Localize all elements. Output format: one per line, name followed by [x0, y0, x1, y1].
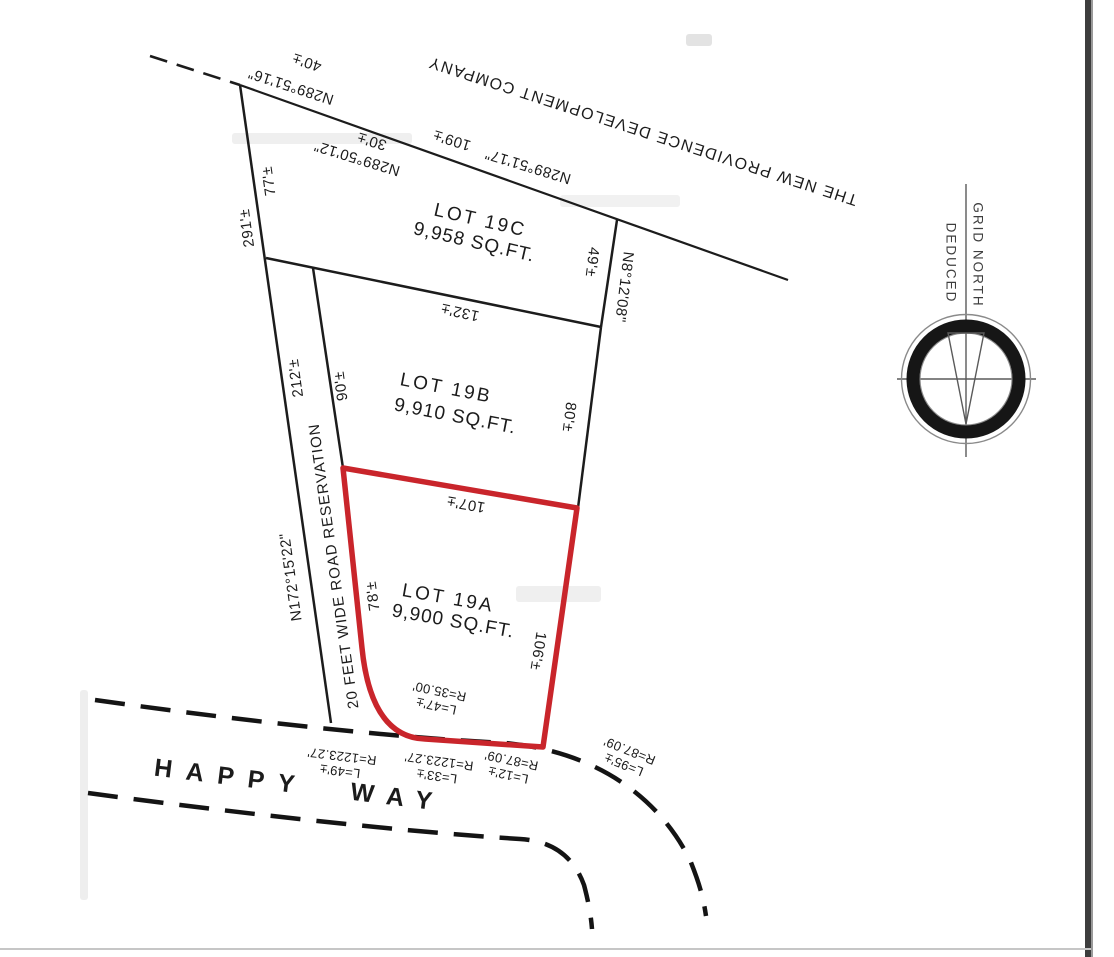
dim-80: 80'± — [559, 401, 580, 433]
west-boundary-line — [240, 85, 331, 723]
compass-grid-north-label: GRID NORTH — [971, 202, 986, 307]
road-edge-lower — [88, 793, 592, 929]
scan-page-edge-fringe — [1091, 0, 1093, 957]
compass-deduced-label: DEDUCED — [944, 223, 959, 304]
dim-49: 49'± — [582, 246, 603, 278]
tie-line-dashed — [150, 56, 240, 85]
lot19b-east-line — [578, 327, 601, 508]
plat-drawing — [0, 0, 1114, 957]
survey-plat-sheet: THE NEW PROVIDENCE DEVELOPMENT COMPANY 4… — [0, 0, 1114, 957]
compass-rose — [897, 184, 1036, 457]
scan-bottom-line — [0, 948, 1091, 950]
